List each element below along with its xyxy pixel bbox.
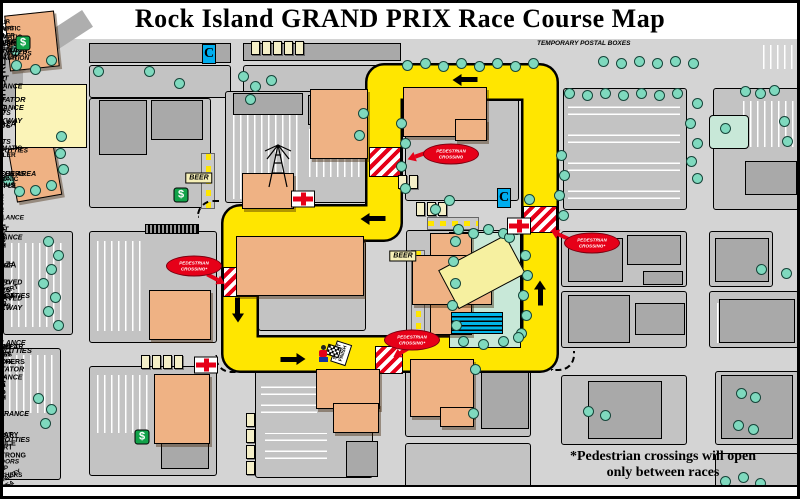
parking-lot [97, 241, 143, 331]
parking-lot [97, 375, 149, 433]
tree-icon [522, 270, 533, 281]
tree-icon [520, 250, 531, 261]
tree-icon [144, 66, 155, 77]
footnote-line1: *Pedestrian crossings will open [570, 449, 756, 465]
tree-icon [685, 118, 696, 129]
city-block [405, 443, 531, 489]
tree-icon [46, 404, 57, 415]
tree-icon [38, 278, 49, 289]
tree-icon [524, 194, 535, 205]
arrow-tail [281, 357, 297, 362]
phone-icon: C [497, 188, 511, 208]
pedestrian-crossing-callout: PEDESTRIAN CROSSING [423, 144, 479, 165]
tree-icon [400, 138, 411, 149]
tree-icon [510, 61, 521, 72]
arrow-tail [236, 298, 241, 314]
map-label: MASONIC TEMPLE [0, 176, 18, 190]
tree-icon [692, 138, 703, 149]
tree-icon [458, 336, 469, 347]
course-entry-dashed-line [551, 351, 575, 371]
racer-legs [319, 357, 328, 362]
tree-icon [430, 204, 441, 215]
tree-icon [556, 150, 567, 161]
map-label: ◄ [0, 382, 6, 390]
building [719, 299, 795, 343]
tree-icon [733, 420, 744, 431]
tree-icon [652, 58, 663, 69]
tree-icon [354, 130, 365, 141]
tree-icon [686, 156, 697, 167]
tree-icon [468, 408, 479, 419]
portapotty-icon [262, 41, 271, 55]
ambulance-cross-icon [291, 191, 315, 208]
tree-icon [513, 332, 524, 343]
building [588, 381, 662, 439]
tree-icon [688, 58, 699, 69]
beer-sign: BEER [185, 173, 212, 184]
pedestrian-crossing-callout: PEDESTRIAN CROSSING* [564, 233, 620, 254]
course-entry-dashed-line [215, 355, 237, 373]
atm-dollar-icon: $ [16, 36, 31, 51]
ambulance-cross-icon [507, 218, 531, 235]
tree-icon [358, 108, 369, 119]
map-label: WHBF [0, 262, 13, 269]
tree-icon [781, 268, 792, 279]
parking-lot [568, 129, 680, 143]
tree-icon [756, 264, 767, 275]
direction-arrow-icon [361, 213, 386, 225]
tree-icon [46, 180, 57, 191]
portapotty-icon [416, 202, 425, 216]
tree-icon [559, 170, 570, 181]
tree-icon [456, 58, 467, 69]
direction-arrow-icon [232, 298, 244, 323]
tree-icon [616, 58, 627, 69]
footnote-line2: only between races [607, 465, 720, 481]
building [233, 93, 303, 115]
tree-icon [53, 250, 64, 261]
parking-lot [568, 101, 680, 115]
tree-icon [400, 183, 411, 194]
portapotty-icon [246, 413, 255, 427]
map-label: PITS [0, 139, 11, 147]
tree-icon [782, 136, 793, 147]
tree-icon [672, 88, 683, 99]
portapotty-icon [273, 41, 282, 55]
race-course-map: Rock Island GRAND PRIX Race Course Map T… [0, 0, 800, 499]
tree-icon [238, 71, 249, 82]
tree-icon [583, 406, 594, 417]
tree-icon [554, 190, 565, 201]
tree-icon [55, 148, 66, 159]
parking-lot [763, 45, 799, 69]
portapotty-icon [284, 41, 293, 55]
parking-lot [568, 185, 680, 199]
tree-icon [46, 55, 57, 66]
map-label: PORTAPOTTIES [0, 147, 28, 154]
portapotty-icon [174, 355, 183, 369]
tree-icon [93, 66, 104, 77]
tree-icon [30, 64, 41, 75]
tree-icon [245, 94, 256, 105]
tree-icon [582, 90, 593, 101]
pedestrian-crossing-zone [369, 147, 401, 177]
map-label: PIT ENTRANCE [0, 411, 29, 419]
tree-icon [692, 173, 703, 184]
map-label: FORT ARMSTRONG [0, 444, 26, 459]
tree-icon [453, 224, 464, 235]
arrow-tail [370, 217, 386, 222]
tree-icon [468, 228, 479, 239]
tree-icon [521, 310, 532, 321]
portapotty-icon [246, 429, 255, 443]
portapotty-icon [295, 41, 304, 55]
city-block [89, 65, 231, 98]
tree-icon [750, 392, 761, 403]
tree-icon [396, 118, 407, 129]
tree-icon [46, 264, 57, 275]
building [151, 100, 203, 140]
building [715, 238, 769, 282]
map-label: PITS [0, 123, 11, 131]
tree-icon [50, 292, 61, 303]
tree-icon [402, 60, 413, 71]
tree-icon [30, 185, 41, 196]
tree-icon [492, 58, 503, 69]
tree-icon [748, 424, 759, 435]
tree-icon [692, 98, 703, 109]
building [643, 271, 683, 285]
tree-icon [174, 78, 185, 89]
arrow-head [453, 74, 462, 86]
tree-icon [43, 306, 54, 317]
map-label: PITS [0, 110, 11, 118]
parking-lot [265, 433, 327, 441]
tree-icon [53, 320, 64, 331]
tree-icon [470, 364, 481, 375]
landmark-building [310, 89, 368, 159]
tree-icon [738, 472, 749, 483]
tree-icon [498, 336, 509, 347]
tree-icon [444, 195, 455, 206]
tree-icon [420, 58, 431, 69]
building [745, 161, 797, 195]
tree-icon [600, 410, 611, 421]
arrow-head [232, 314, 244, 323]
arrow-tail [462, 78, 478, 83]
building [161, 443, 209, 469]
portapotty-icon [251, 41, 260, 55]
tree-icon [528, 58, 539, 69]
tree-icon [250, 81, 261, 92]
portapotty-icon [246, 445, 255, 459]
atm-dollar-icon: $ [174, 188, 189, 203]
map-label: PROJECT NOW [0, 344, 18, 358]
atm-dollar-icon: $ [135, 430, 150, 445]
parking-lot [568, 157, 680, 171]
direction-arrow-icon [453, 74, 478, 86]
tree-icon [634, 56, 645, 67]
beer-sign: BEER [389, 251, 416, 262]
tree-icon [558, 210, 569, 221]
arrow-head [534, 281, 546, 290]
tree-icon [654, 90, 665, 101]
tree-icon [396, 161, 407, 172]
tree-icon [438, 61, 449, 72]
map-label: RESERVED PITS [0, 295, 22, 310]
tree-icon [451, 320, 462, 331]
race-headquarters-box [15, 84, 87, 148]
portapotty-icon [163, 355, 172, 369]
building [99, 100, 147, 155]
building [481, 365, 529, 429]
bleachers-icon [145, 224, 199, 234]
tree-icon [740, 86, 751, 97]
tree-icon [598, 56, 609, 67]
tree-icon [670, 56, 681, 67]
landmark-building [455, 119, 487, 141]
tree-icon [618, 90, 629, 101]
tree-icon [56, 131, 67, 142]
portapotty-icon [152, 355, 161, 369]
map-label: AMBULANCE [0, 214, 24, 221]
landmark-building [154, 374, 210, 444]
temporary-postal-boxes-label: TEMPORARY POSTAL BOXES [537, 40, 630, 47]
radio-tower-icon [263, 143, 293, 189]
tree-icon [779, 116, 790, 127]
tree-icon [736, 388, 747, 399]
portapotty-icon [246, 461, 255, 475]
map-bottom-margin [3, 485, 797, 498]
tree-icon [40, 418, 51, 429]
landmark-building [149, 290, 211, 340]
tree-icon [564, 88, 575, 99]
tree-icon [450, 278, 461, 289]
tree-icon [474, 61, 485, 72]
tree-icon [33, 393, 44, 404]
tree-icon [266, 75, 277, 86]
tree-icon [755, 88, 766, 99]
direction-arrow-icon [534, 281, 546, 306]
tree-icon [478, 339, 489, 350]
tree-icon [450, 236, 461, 247]
map-label: LIBRARY [0, 432, 18, 440]
tree-icon [600, 88, 611, 99]
landmark-building [236, 236, 364, 296]
racer-icon [317, 345, 329, 363]
parking-lot [261, 401, 317, 413]
building [346, 441, 378, 477]
arrow-head [361, 213, 370, 225]
direction-arrow-icon [281, 353, 306, 365]
tree-icon [447, 300, 458, 311]
building [627, 235, 681, 265]
building [568, 295, 630, 343]
portapotty-icon [141, 355, 150, 369]
tree-icon [720, 123, 731, 134]
tree-icon [448, 256, 459, 267]
map-label: VIP BLEACHERS [0, 466, 22, 480]
ambulance-cross-icon [194, 357, 218, 374]
pedestrian-crossing-callout: PEDESTRIAN CROSSING* [166, 256, 222, 277]
landmark-building [333, 403, 379, 433]
arrow-head [297, 353, 306, 365]
map-label: PRE-GRID [0, 229, 6, 253]
page-title: Rock Island GRAND PRIX Race Course Map [3, 4, 797, 34]
racer-body [319, 350, 327, 357]
tree-icon [636, 88, 647, 99]
tree-icon [483, 224, 494, 235]
parking-lot [265, 449, 327, 459]
tree-icon [518, 290, 529, 301]
parking-lot [261, 383, 317, 395]
tree-icon [43, 236, 54, 247]
tree-icon [769, 85, 780, 96]
building [635, 303, 685, 335]
arrow-tail [538, 290, 543, 306]
phone-icon: C [202, 44, 216, 64]
map-label: PIT ENTRANCE [0, 75, 22, 90]
pedestrian-crossing-callout: PEDESTRIAN CROSSING* [384, 330, 440, 351]
tree-icon [58, 164, 69, 175]
